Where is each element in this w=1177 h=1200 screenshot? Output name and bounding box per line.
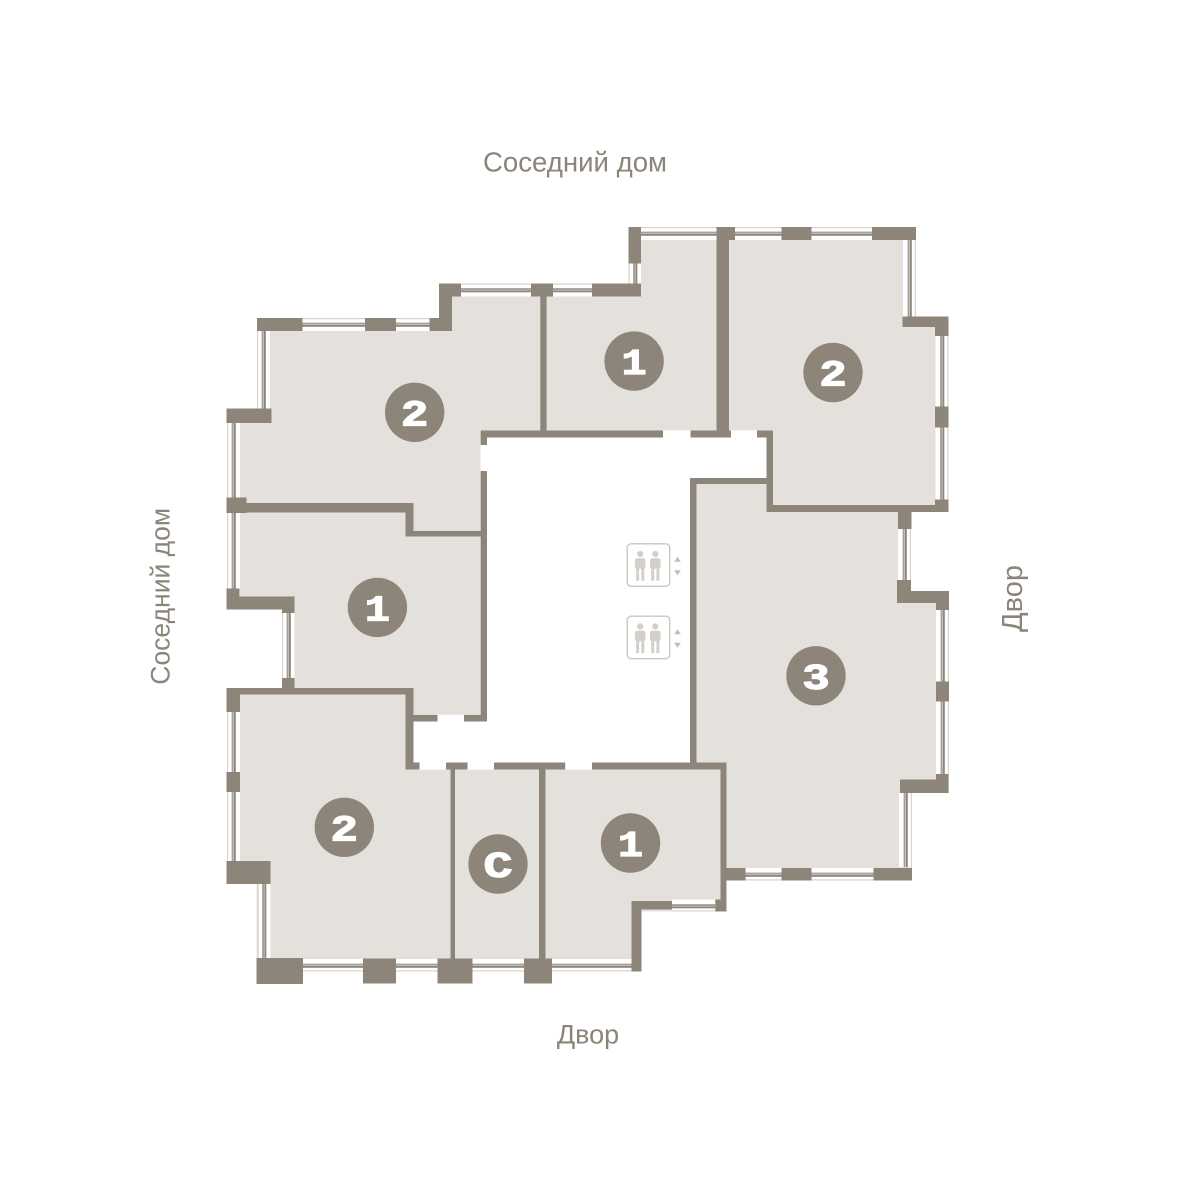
svg-text:2: 2 [401, 395, 429, 436]
svg-text:Двор: Двор [997, 565, 1029, 632]
svg-text:Соседний дом: Соседний дом [146, 508, 176, 685]
svg-text:1: 1 [365, 590, 390, 631]
svg-text:2: 2 [331, 810, 359, 851]
svg-text:Соседний дом: Соседний дом [483, 147, 667, 178]
svg-text:1: 1 [622, 344, 647, 385]
svg-text:1: 1 [618, 826, 643, 867]
svg-text:С: С [484, 847, 513, 888]
svg-text:Двор: Двор [557, 1020, 619, 1050]
svg-text:3: 3 [802, 659, 830, 700]
svg-text:2: 2 [819, 356, 847, 397]
